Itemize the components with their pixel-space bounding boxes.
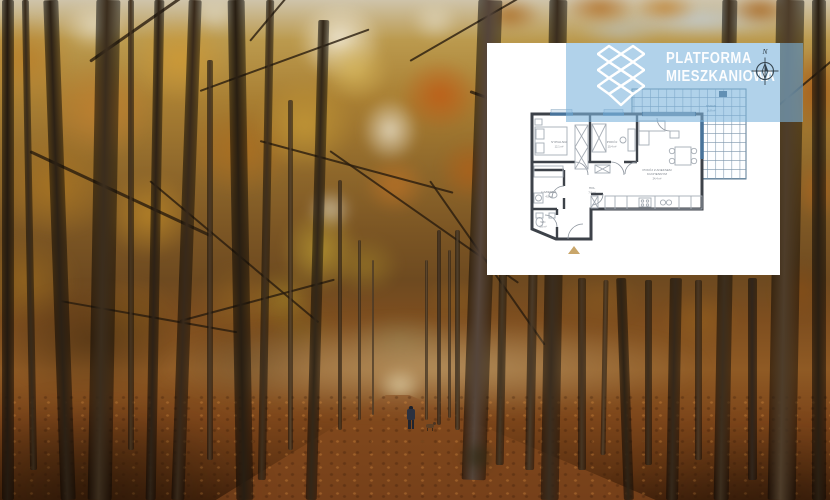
tree-trunk xyxy=(437,230,441,425)
person-legR xyxy=(412,420,414,429)
room-label: KUCHENNYM xyxy=(647,172,667,176)
person-legL xyxy=(408,420,410,429)
tree-trunk xyxy=(288,100,293,450)
dog-head xyxy=(433,422,436,425)
dog-leg2 xyxy=(432,428,433,432)
room-area: 1,6 m² xyxy=(539,224,546,228)
room-label: ŁAZIENKA xyxy=(542,190,558,194)
tree-trunk xyxy=(2,0,14,500)
foliage-blob xyxy=(400,0,470,50)
tree-trunk xyxy=(812,0,826,500)
moss-patch xyxy=(460,440,496,474)
foliage-blob xyxy=(315,223,415,307)
room-area: 7,6 m² xyxy=(588,190,595,194)
room-area: 10,4 m² xyxy=(608,144,617,148)
tree-trunk xyxy=(338,180,342,430)
room-label: WC xyxy=(540,220,546,224)
tree-trunk xyxy=(358,240,361,420)
compass-icon: N xyxy=(747,44,783,88)
tree-trunk xyxy=(578,278,586,470)
brand-logo-icon xyxy=(597,44,645,107)
room-area: 12,1 m² xyxy=(555,144,564,148)
walking-person xyxy=(407,406,415,430)
entrance-marker xyxy=(568,246,580,254)
tree-trunk xyxy=(645,280,652,465)
apartment-walls xyxy=(532,114,702,239)
tree-trunk xyxy=(372,260,374,415)
brand-banner: PLATFORMA MIESZKANIOWA N xyxy=(566,43,803,122)
tree-trunk xyxy=(748,278,757,480)
room-label: HOL xyxy=(589,186,596,190)
dog xyxy=(426,422,437,431)
tree-trunk xyxy=(207,60,213,460)
tree-trunk xyxy=(455,230,460,430)
person-torso xyxy=(407,409,415,420)
room-area: 24,4 m² xyxy=(653,176,662,180)
tree-trunk xyxy=(425,260,428,420)
room-area: 4,9 m² xyxy=(545,194,552,198)
tree-trunk xyxy=(128,0,134,450)
compass-label: N xyxy=(761,47,768,56)
tree-trunk xyxy=(695,280,702,460)
room-label: SYPIALNIA xyxy=(551,140,568,144)
tree-trunk xyxy=(448,250,451,418)
screenshot: SYPIALNIA 12,1 m² POKÓJ 10,4 m² POKÓJ Z … xyxy=(0,0,830,500)
dog-leg1 xyxy=(427,428,428,432)
room-label: POKÓJ xyxy=(607,139,618,144)
